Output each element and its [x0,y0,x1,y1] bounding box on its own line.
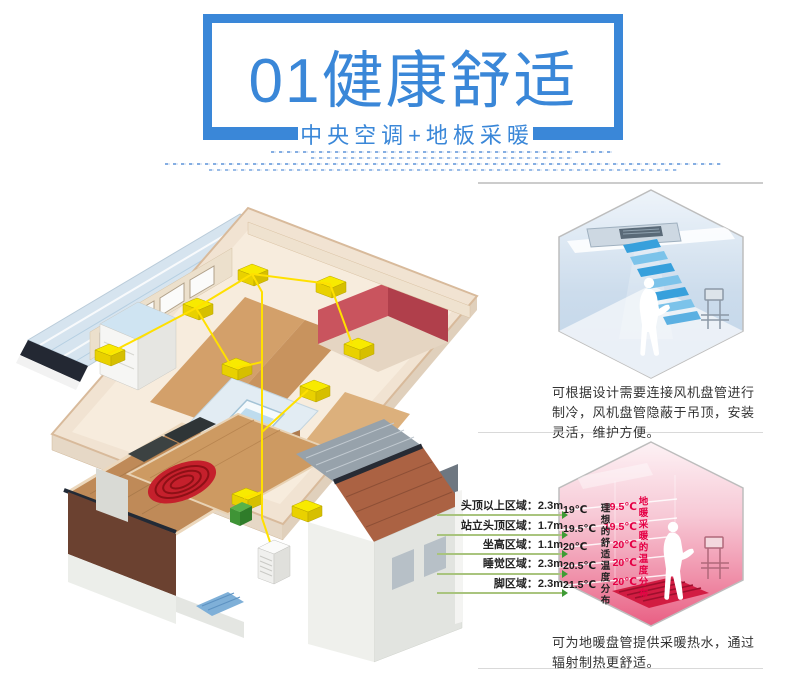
cooling-caption: 可根据设计需要连接风机盘管进行制冷，风机盘管隐蔽于吊顶，安装灵活，维护方便。 [552,383,766,443]
zone-label: 脚区域：2.3m [437,578,566,591]
zone-row: 坐高区域：1.1m [437,536,566,555]
zone-row: 睡觉区域：2.3m [437,555,566,574]
green-arrow-line [437,573,566,575]
heating-caption: 可为地暖盘管提供采暖热水，通过辐射制热更舒适。 [552,633,766,673]
zone-row: 头顶以上区域：2.3m [437,497,566,516]
zone-row: 脚区域：2.3m [437,575,566,594]
house-cutaway-illustration [0,192,480,694]
dash-row [311,157,575,159]
green-arrow-line [437,514,566,516]
green-arrow-line [437,534,566,536]
page: 01健康舒适 中央空调+地板采暖 [0,0,790,694]
subtitle-bar-right [533,127,623,140]
zone-label: 站立头顶区域：1.7m [437,520,566,533]
zone-label: 头顶以上区域：2.3m [437,500,566,513]
dash-row [271,151,615,153]
cooling-hexagon-illustration [557,189,745,379]
green-arrow-line [437,553,566,555]
dash-row [209,169,677,171]
subtitle-bar-left [203,127,298,140]
page-title: 01健康舒适 [249,51,578,113]
zone-label: 坐高区域：1.1m [437,539,566,552]
zone-height-labels: 头顶以上区域：2.3m 站立头顶区域：1.7m 坐高区域：1.1m 睡觉区域：2… [437,497,566,594]
decorative-dash-lines [143,151,743,175]
zone-row: 站立头顶区域：1.7m [437,516,566,535]
page-subtitle: 中央空调+地板采暖 [297,118,537,150]
divider-top [478,182,763,184]
heating-hexagon-illustration [557,441,745,627]
zone-label: 睡觉区域：2.3m [437,558,566,571]
dash-row [165,163,721,165]
green-arrow-line [437,592,566,594]
outdoor-ac-unit [258,540,290,584]
